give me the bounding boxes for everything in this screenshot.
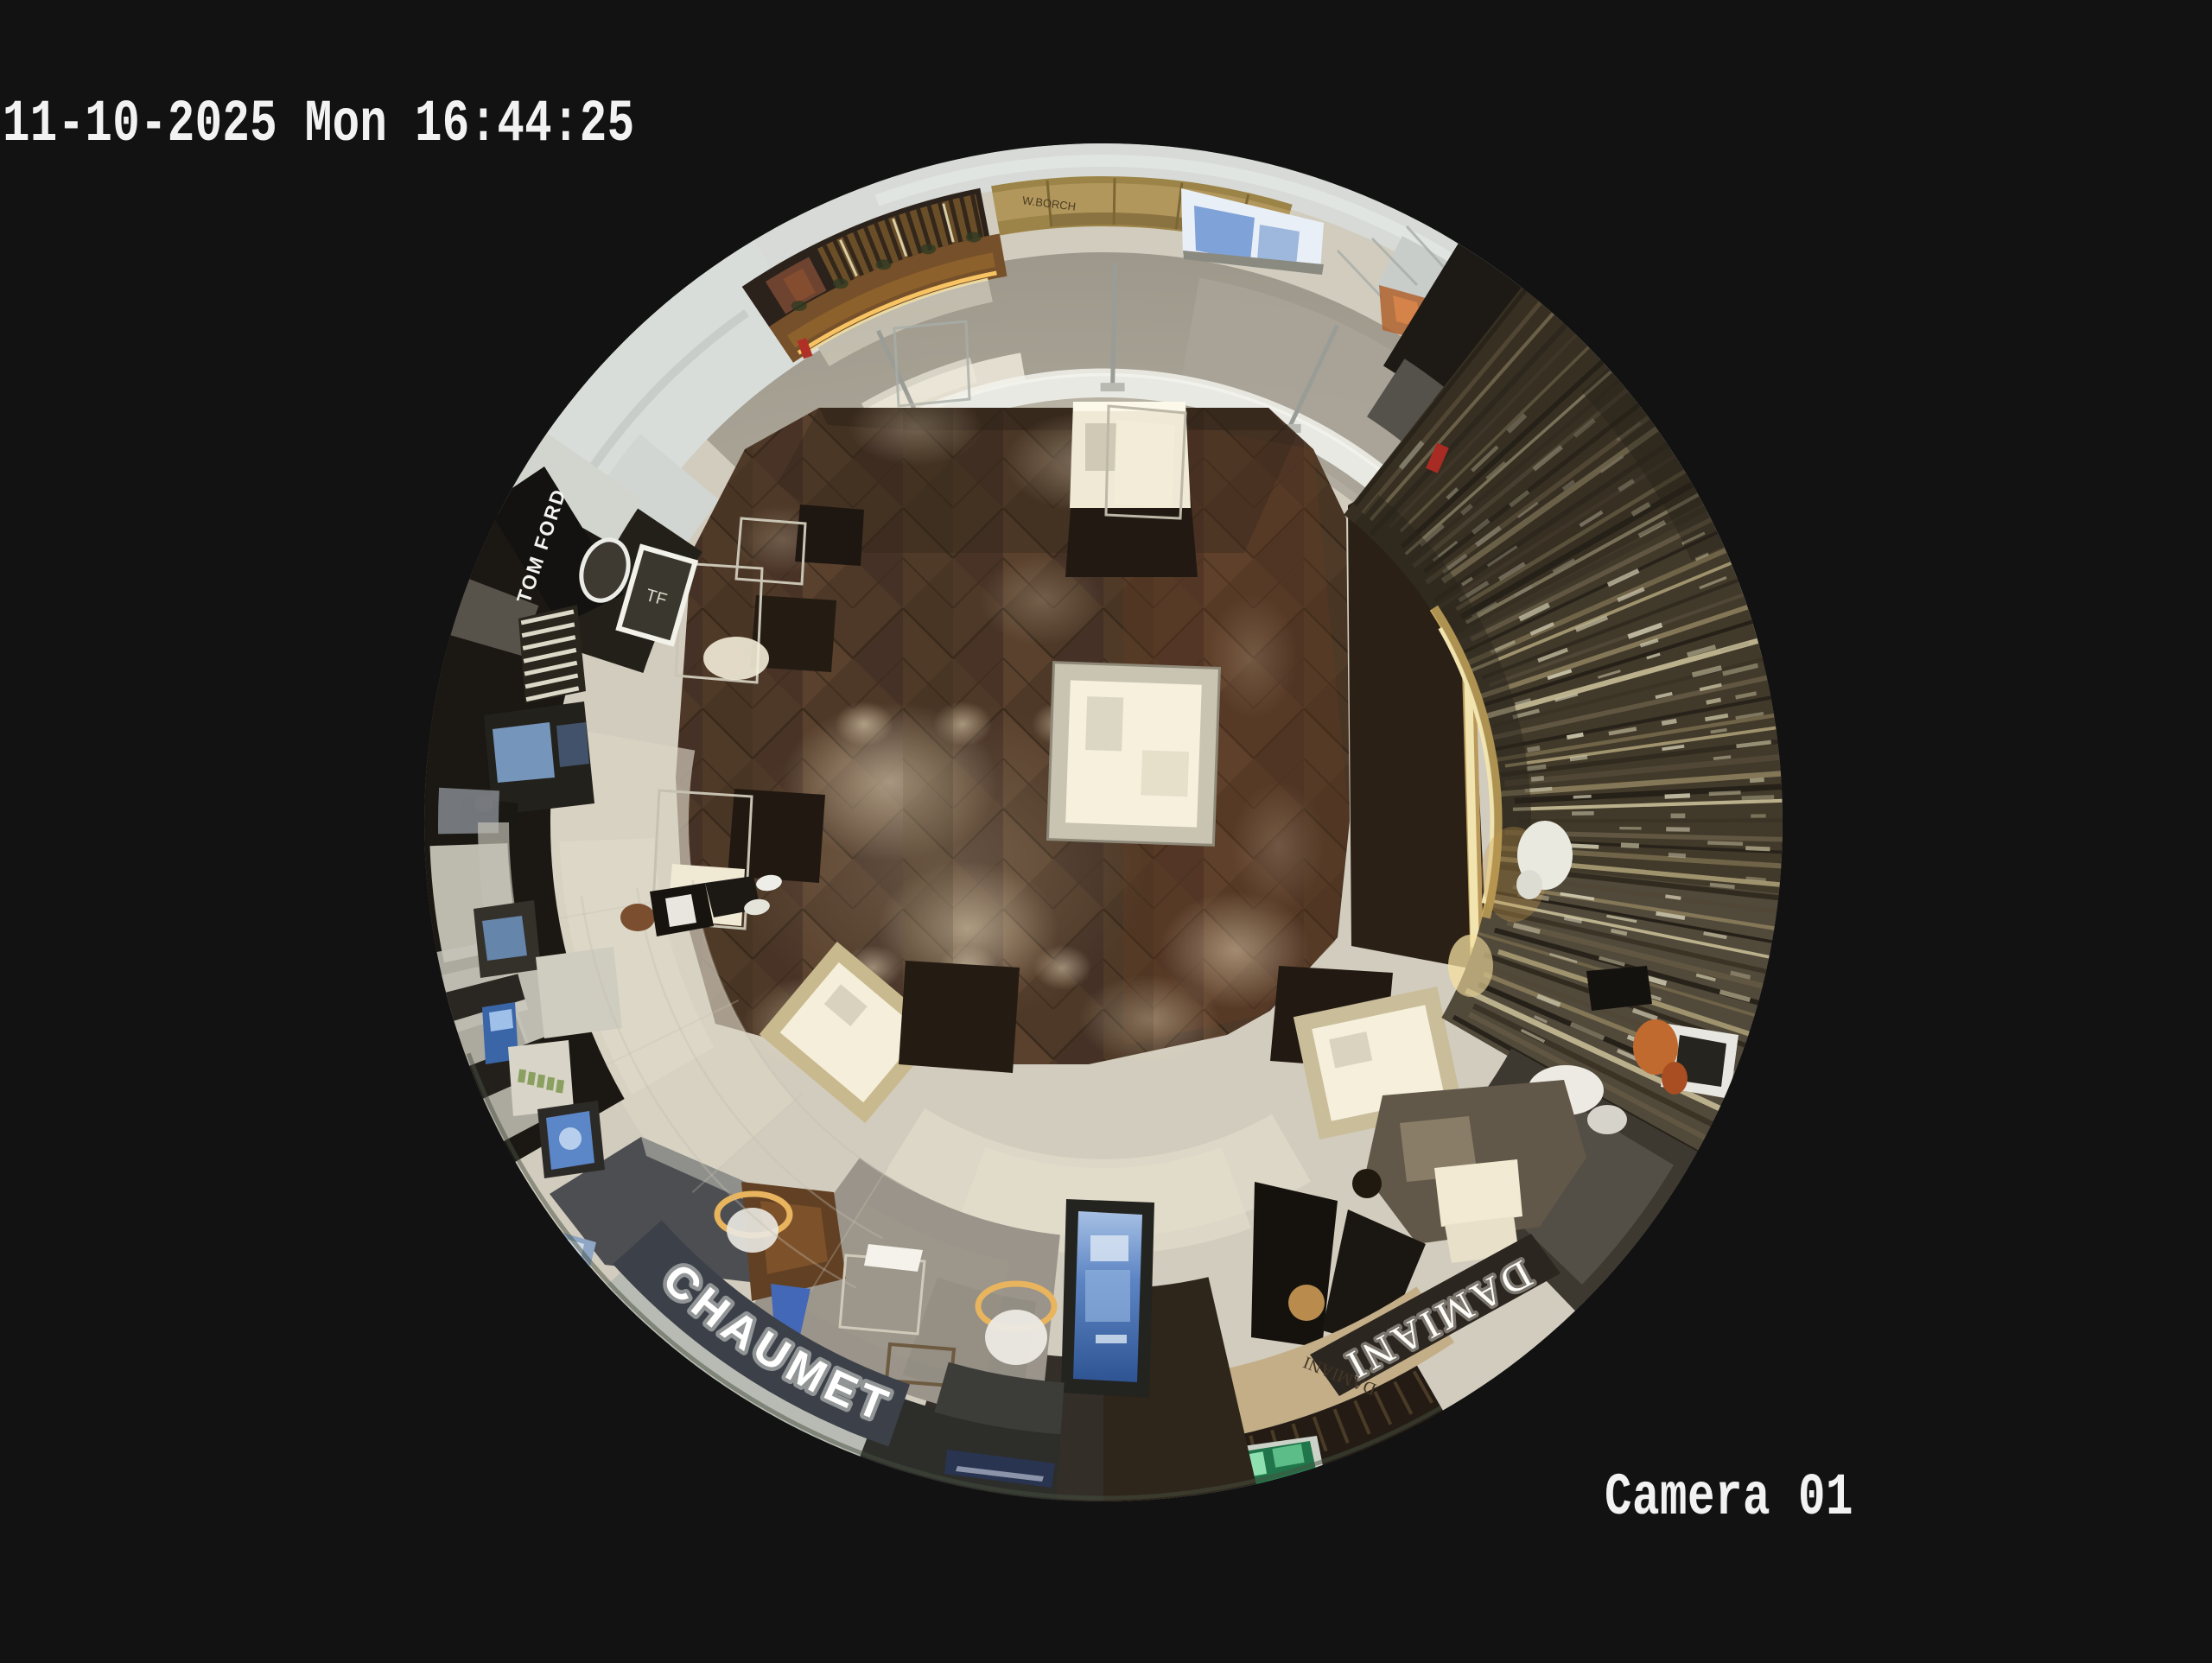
- svg-text:Camera 01: Camera 01: [1605, 1465, 1853, 1532]
- svg-text:11-10-2025 Mon 16:44:25: 11-10-2025 Mon 16:44:25: [3, 92, 634, 158]
